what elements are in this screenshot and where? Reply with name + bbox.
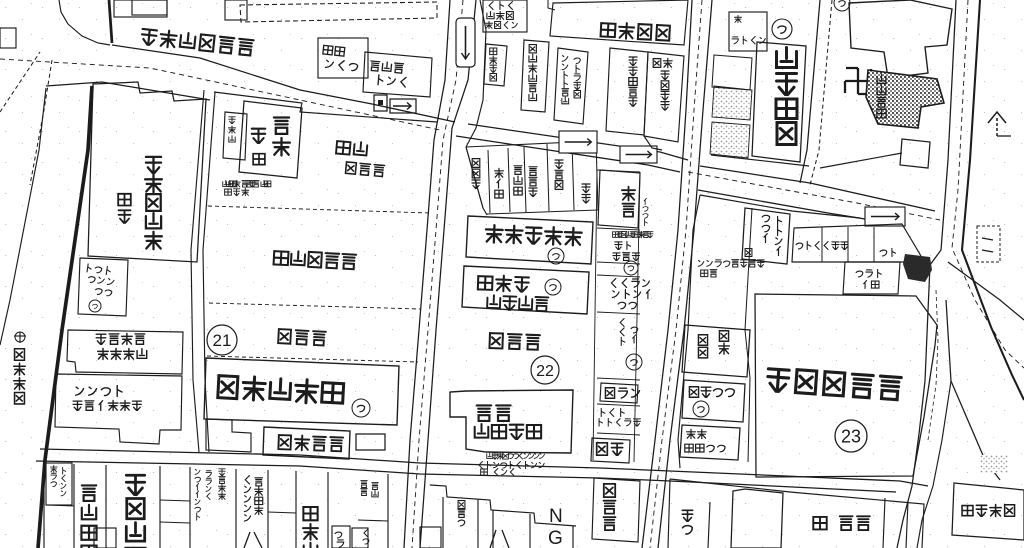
svg-text:21: 21 — [213, 331, 232, 350]
svg-text:23: 23 — [841, 426, 861, 446]
svg-text:N: N — [549, 506, 563, 527]
svg-text:G: G — [548, 528, 563, 548]
svg-text:22: 22 — [536, 363, 554, 380]
